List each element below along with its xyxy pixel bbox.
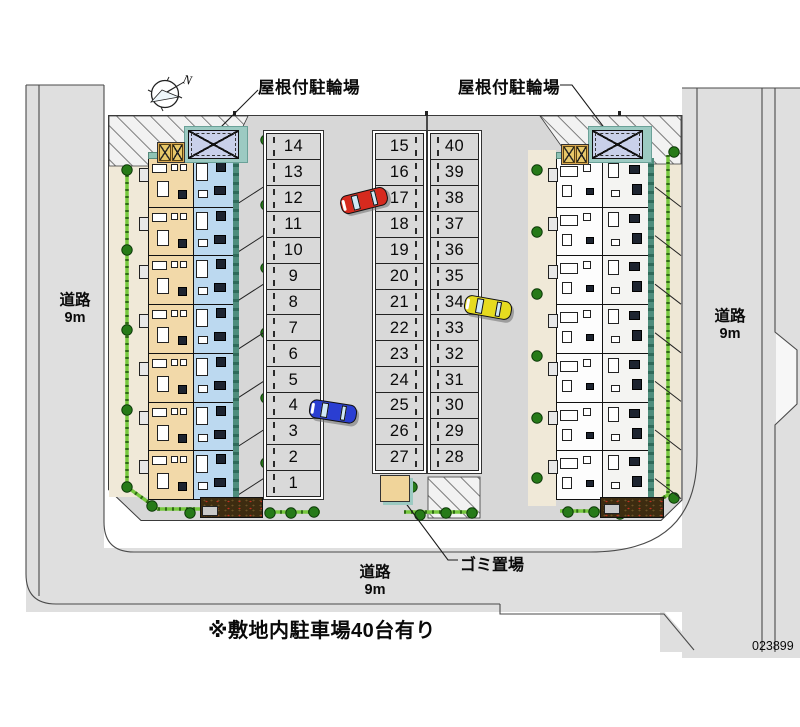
garbage-area-label: ゴミ置場	[460, 551, 524, 575]
apartment-room	[557, 305, 602, 354]
road-name: 道路	[352, 564, 398, 582]
parking-stall-number: 3	[289, 423, 299, 440]
road-width: 9m	[53, 310, 97, 327]
parking-stall-12: 12	[266, 185, 321, 212]
tree-icon	[415, 510, 425, 520]
apartment-room	[194, 354, 233, 403]
parking-stall-3: 3	[266, 418, 321, 445]
apartment-room	[603, 159, 648, 208]
tree-icon	[532, 413, 542, 423]
parking-stall-5: 5	[266, 366, 321, 393]
parking-stall-number: 12	[284, 190, 303, 207]
parking-stall-number: 20	[390, 268, 409, 285]
tree-icon	[532, 351, 542, 361]
apartment-room	[557, 159, 602, 208]
entrance-porch	[139, 362, 149, 376]
utility-box-left	[202, 506, 218, 516]
tree-icon	[286, 508, 296, 518]
parking-stall-22: 22	[375, 314, 424, 341]
tree-icon	[309, 507, 319, 517]
parking-stall-9: 9	[266, 263, 321, 290]
parking-stall-number: 30	[445, 397, 464, 414]
entrance-porch	[548, 460, 558, 474]
entrance-porch	[139, 217, 149, 231]
parking-stall-1: 1	[266, 470, 321, 497]
apartment-room	[557, 451, 602, 499]
apartment-room	[557, 403, 602, 452]
parking-stall-number: 4	[289, 397, 299, 414]
parking-stall-number: 19	[390, 242, 409, 259]
apartment-room	[149, 305, 193, 354]
parking-stall-number: 26	[390, 423, 409, 440]
parking-stall-number: 14	[284, 138, 303, 155]
apartment-room	[557, 256, 602, 305]
apartment-room	[194, 451, 233, 499]
tree-icon	[122, 405, 132, 415]
parking-stall-38: 38	[430, 185, 479, 212]
parking-column-left: 1413121110987654321	[263, 130, 324, 500]
parking-stall-number: 13	[284, 164, 303, 181]
parking-stall-number: 32	[445, 346, 464, 363]
parking-stall-number: 15	[390, 138, 409, 155]
parking-stall-33: 33	[430, 314, 479, 341]
parking-stall-15: 15	[375, 133, 424, 160]
garbage-box	[380, 475, 410, 502]
entrance-porch	[139, 314, 149, 328]
road-width: 9m	[352, 582, 398, 599]
apartment-room	[603, 208, 648, 257]
parking-stall-21: 21	[375, 289, 424, 316]
parking-stall-35: 35	[430, 263, 479, 290]
right-building-rooms-west	[556, 158, 603, 500]
entrance-porch	[139, 460, 149, 474]
parking-stall-number: 10	[284, 242, 303, 259]
parking-stall-number: 7	[289, 320, 299, 337]
apartment-room	[603, 305, 648, 354]
parking-stall-number: 11	[284, 216, 302, 233]
parking-stall-number: 35	[445, 268, 464, 285]
bicycle-rack-right	[561, 144, 589, 165]
parking-column-middle: 15161718192021222324252627	[372, 130, 427, 474]
parking-stall-26: 26	[375, 418, 424, 445]
parking-stall-number: 40	[445, 138, 464, 155]
parking-stall-number: 6	[289, 346, 299, 363]
apartment-room	[194, 256, 233, 305]
parking-stall-25: 25	[375, 392, 424, 419]
parking-stall-19: 19	[375, 237, 424, 264]
entrance-porch	[548, 217, 558, 231]
road-width: 9m	[706, 326, 754, 343]
tree-icon	[563, 507, 573, 517]
entrance-porch	[139, 265, 149, 279]
parking-stall-37: 37	[430, 211, 479, 238]
parking-stall-2: 2	[266, 444, 321, 471]
apartment-room	[194, 208, 233, 257]
bicycle-rack-left	[157, 142, 185, 163]
parking-stall-40: 40	[430, 133, 479, 160]
tree-icon	[669, 493, 679, 503]
apartment-room	[603, 403, 648, 452]
tree-icon	[122, 245, 132, 255]
parking-stall-number: 28	[445, 449, 464, 466]
parking-stall-16: 16	[375, 159, 424, 186]
parking-stall-number: 39	[445, 164, 464, 181]
entrance-porch	[548, 168, 558, 182]
tree-icon	[441, 508, 451, 518]
parking-stall-11: 11	[266, 211, 321, 238]
bicycle-shelter-left	[188, 130, 239, 159]
compass-icon	[148, 77, 184, 111]
road-label-right: 道路 9m	[706, 308, 754, 342]
entrance-porch	[548, 314, 558, 328]
right-building-rooms-east	[602, 158, 649, 500]
parking-stall-number: 34	[445, 294, 464, 311]
parking-stall-30: 30	[430, 392, 479, 419]
parking-stall-number: 29	[445, 423, 464, 440]
entrance-porch	[548, 411, 558, 425]
parking-stall-number: 27	[390, 449, 409, 466]
tree-icon	[532, 473, 542, 483]
tree-icon	[532, 289, 542, 299]
left-building-rooms-west	[148, 158, 194, 500]
tree-icon	[532, 165, 542, 175]
apartment-room	[603, 256, 648, 305]
parking-stall-number: 1	[289, 475, 299, 492]
road-name: 道路	[706, 308, 754, 326]
tree-icon	[122, 165, 132, 175]
parking-stall-number: 37	[445, 216, 464, 233]
parking-stall-8: 8	[266, 289, 321, 316]
parking-stall-number: 33	[445, 320, 464, 337]
bicycle-shelter-right	[592, 130, 643, 159]
apartment-room	[194, 159, 233, 208]
site-plan: 1413121110987654321 15161718192021222324…	[0, 0, 800, 727]
parking-stall-20: 20	[375, 263, 424, 290]
apartment-room	[557, 208, 602, 257]
parking-stall-number: 16	[390, 164, 409, 181]
parking-stall-14: 14	[266, 133, 321, 160]
parking-stall-number: 18	[390, 216, 409, 233]
tree-icon	[185, 508, 195, 518]
parking-stall-number: 25	[390, 397, 409, 414]
entrance-porch	[548, 362, 558, 376]
utility-box-right	[604, 504, 620, 514]
road-label-left: 道路 9m	[53, 292, 97, 326]
tree-icon	[589, 507, 599, 517]
apartment-room	[149, 451, 193, 499]
entrance-porch	[139, 168, 149, 182]
parking-stall-36: 36	[430, 237, 479, 264]
parking-stall-31: 31	[430, 366, 479, 393]
parking-stall-18: 18	[375, 211, 424, 238]
apartment-room	[603, 451, 648, 499]
left-building-balcony-edge	[233, 158, 239, 500]
tree-icon	[265, 508, 275, 518]
road-name: 道路	[53, 292, 97, 310]
parking-stall-number: 38	[445, 190, 464, 207]
apartment-room	[149, 256, 193, 305]
parking-stall-number: 23	[390, 346, 409, 363]
apartment-room	[194, 403, 233, 452]
apartment-room	[149, 403, 193, 452]
parking-stall-number: 9	[289, 268, 299, 285]
parking-stall-number: 31	[445, 372, 464, 389]
tree-icon	[147, 501, 157, 511]
parking-stall-7: 7	[266, 314, 321, 341]
apartment-room	[149, 159, 193, 208]
left-building-rooms-east	[193, 158, 234, 500]
plan-number: 023899	[752, 639, 794, 653]
right-building-balcony-edge	[648, 158, 654, 500]
tree-icon	[122, 482, 132, 492]
covered-bicycle-parking-label-left: 屋根付駐輪場	[258, 74, 360, 98]
parking-stall-24: 24	[375, 366, 424, 393]
entrance-porch	[139, 411, 149, 425]
tree-icon	[122, 325, 132, 335]
parking-stall-32: 32	[430, 340, 479, 367]
parking-stall-39: 39	[430, 159, 479, 186]
parking-stall-6: 6	[266, 340, 321, 367]
parking-stall-28: 28	[430, 444, 479, 471]
tree-icon	[467, 508, 477, 518]
apartment-room	[149, 208, 193, 257]
parking-stall-number: 8	[289, 294, 299, 311]
parking-stall-number: 5	[289, 372, 299, 389]
tree-icon	[669, 147, 679, 157]
parking-stall-number: 22	[390, 320, 409, 337]
covered-bicycle-parking-label-right: 屋根付駐輪場	[458, 74, 560, 98]
apartment-room	[557, 354, 602, 403]
parking-stall-10: 10	[266, 237, 321, 264]
road-label-bottom: 道路 9m	[352, 564, 398, 598]
site-note: ※敷地内駐車場40台有り	[208, 614, 436, 643]
apartment-room	[194, 305, 233, 354]
parking-stall-number: 2	[289, 449, 299, 466]
parking-stall-number: 24	[390, 372, 409, 389]
apartment-room	[149, 354, 193, 403]
parking-stall-number: 17	[390, 190, 409, 207]
tree-icon	[532, 227, 542, 237]
parking-stall-number: 21	[390, 294, 409, 311]
parking-stall-29: 29	[430, 418, 479, 445]
entrance-porch	[548, 265, 558, 279]
parking-stall-27: 27	[375, 444, 424, 471]
parking-stall-number: 36	[445, 242, 464, 259]
apartment-room	[603, 354, 648, 403]
parking-stall-13: 13	[266, 159, 321, 186]
parking-stall-23: 23	[375, 340, 424, 367]
